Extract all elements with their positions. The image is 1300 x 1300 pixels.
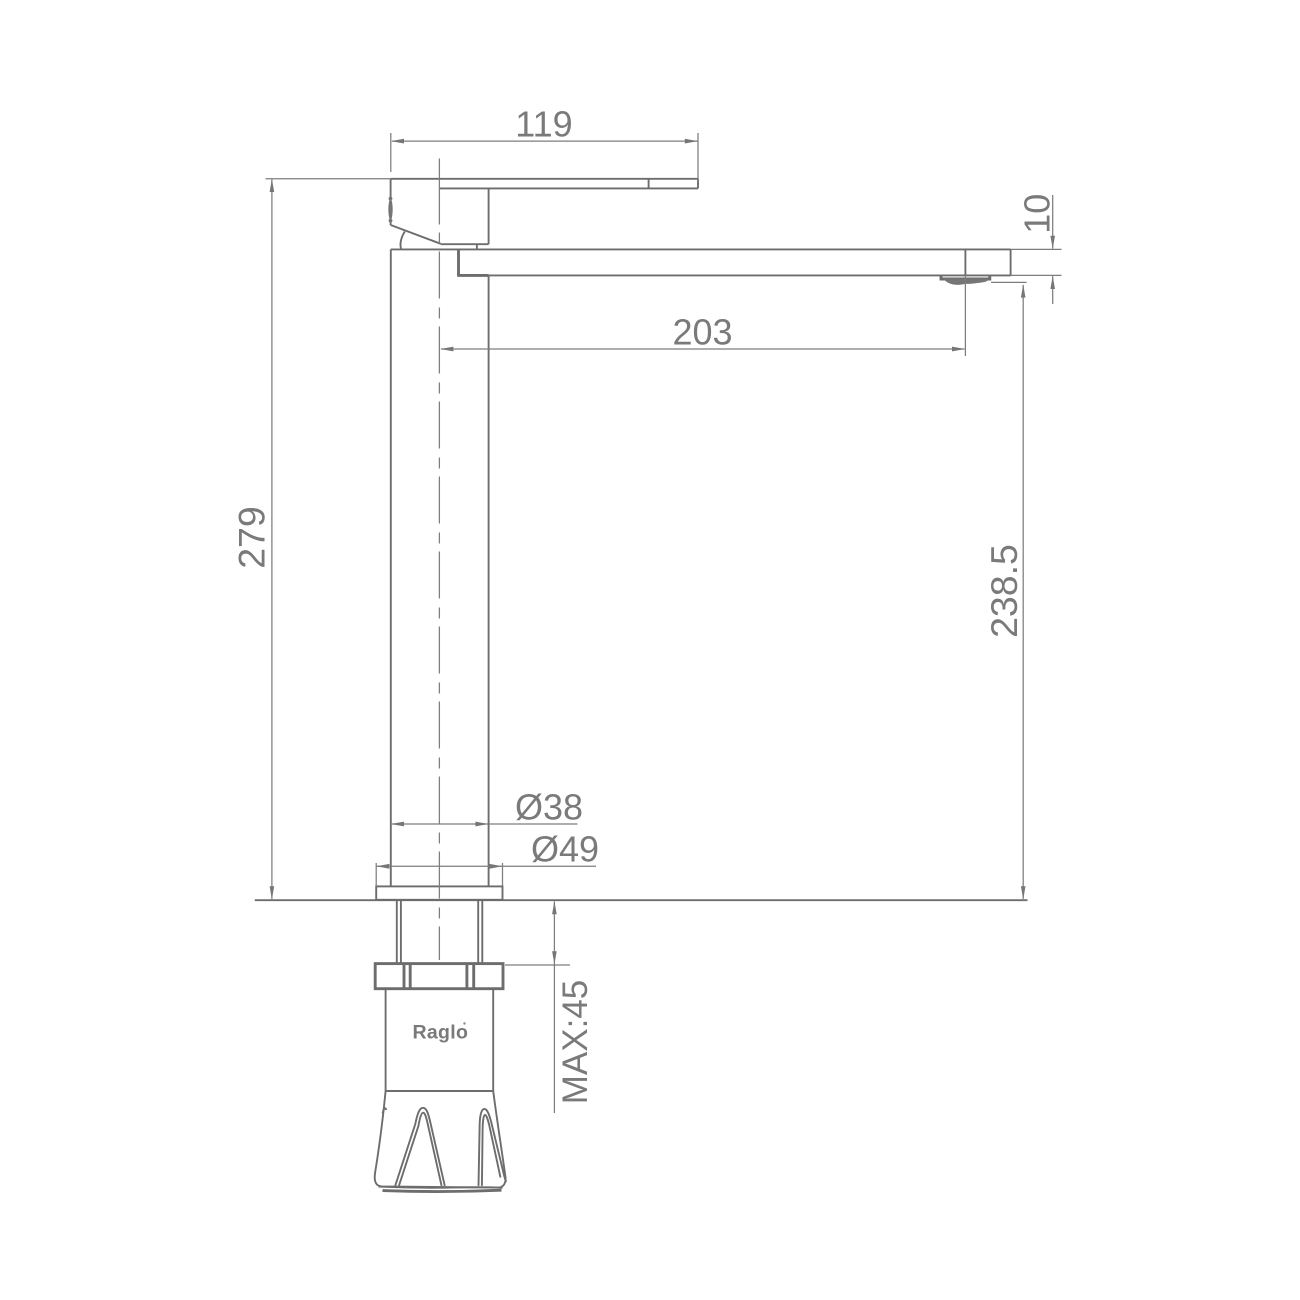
svg-text:MAX:45: MAX:45 <box>556 980 595 1105</box>
svg-text:119: 119 <box>515 104 572 145</box>
svg-text:279: 279 <box>230 506 272 569</box>
svg-text:Ø38: Ø38 <box>515 787 583 828</box>
svg-text:Ø49: Ø49 <box>531 829 599 870</box>
svg-text:203: 203 <box>672 312 732 353</box>
svg-text:Raglo: Raglo <box>413 1022 469 1044</box>
svg-text:10: 10 <box>1017 194 1058 234</box>
svg-text:238.5: 238.5 <box>983 544 1025 638</box>
